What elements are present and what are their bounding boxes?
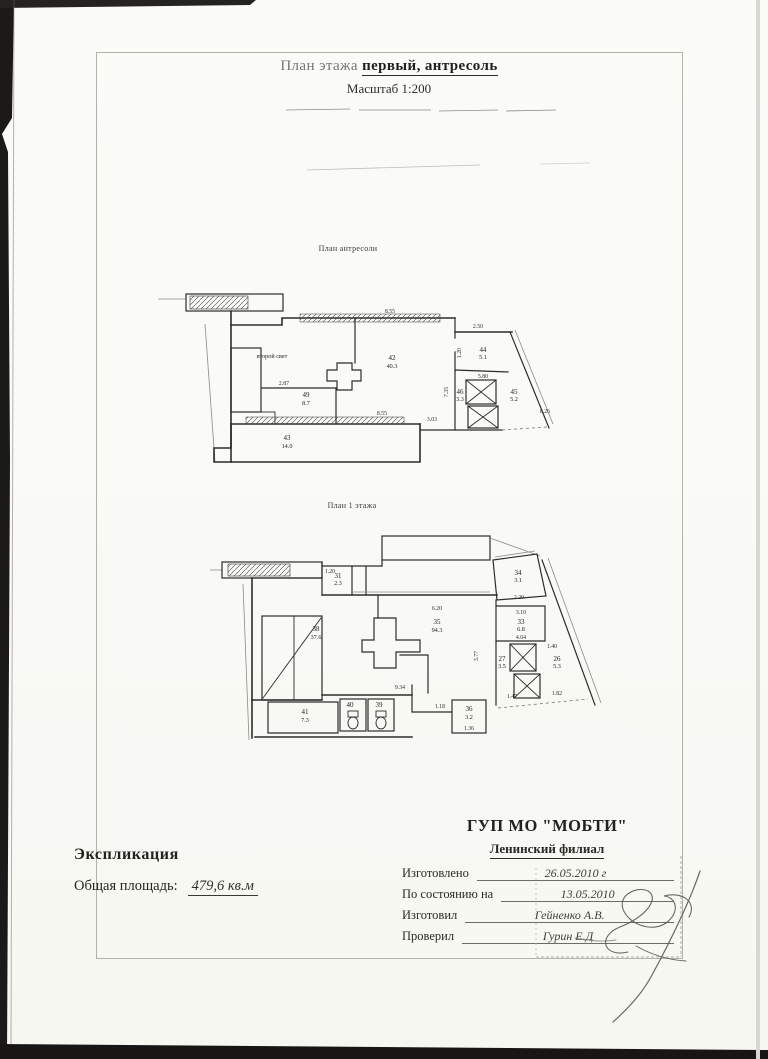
mezzanine-plan-caption: План антресоли bbox=[148, 244, 548, 253]
title-prefix: План этажа bbox=[280, 58, 358, 74]
stamp-row: Изготовлено 26.05.2010 г bbox=[402, 866, 674, 881]
stamp-value: 13.05.2010 bbox=[501, 887, 674, 902]
total-area-row: Общая площадь:479,6 кв.м bbox=[74, 878, 258, 895]
total-area-label: Общая площадь: bbox=[74, 878, 178, 894]
total-area-value: 479,6 кв.м bbox=[188, 878, 258, 896]
stamp-table: Изготовлено 26.05.2010 г По состоянию на… bbox=[402, 866, 674, 950]
stamp-value: Гурин Е.Д bbox=[462, 929, 674, 944]
stamp-label: По состоянию на bbox=[402, 887, 493, 902]
organization-name: ГУП МО "МОБТИ" bbox=[412, 816, 682, 836]
stamp-label: Изготовил bbox=[402, 908, 457, 923]
stamp-value: 26.05.2010 г bbox=[477, 866, 674, 881]
scanned-document-page: План этажа первый, антресоль Масштаб 1:2… bbox=[0, 0, 768, 1059]
explication-heading: Экспликация bbox=[74, 846, 179, 864]
organization-branch: Ленинский филиал bbox=[490, 841, 605, 859]
stamp-label: Проверил bbox=[402, 929, 454, 944]
stamp-row: По состоянию на 13.05.2010 bbox=[402, 887, 674, 902]
page-title: План этажа первый, антресоль bbox=[97, 58, 681, 75]
stamp-label: Изготовлено bbox=[402, 866, 469, 881]
stamp-row: Проверил Гурин Е.Д bbox=[402, 929, 674, 944]
scale-label: Масштаб 1:200 bbox=[97, 81, 681, 97]
organization-block: ГУП МО "МОБТИ" Ленинский филиал bbox=[412, 816, 682, 859]
document-header: План этажа первый, антресоль Масштаб 1:2… bbox=[97, 58, 681, 97]
stamp-row: Изготовил Гейненко А.В. bbox=[402, 908, 674, 923]
stamp-value: Гейненко А.В. bbox=[465, 908, 674, 923]
first-floor-plan-caption: План 1 этажа bbox=[152, 501, 552, 510]
title-emphasis: первый, антресоль bbox=[362, 58, 498, 76]
